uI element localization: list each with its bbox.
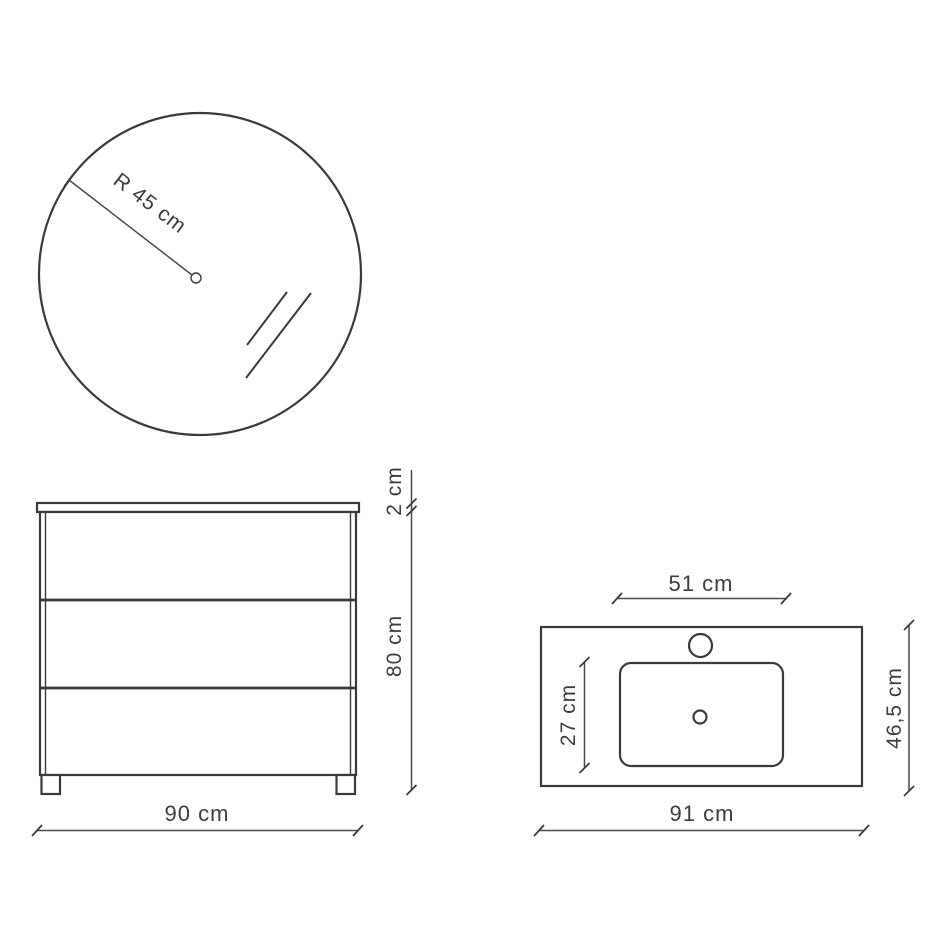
basin-depth-label: 27 cm (557, 684, 580, 746)
washbasin-depth-label: 46,5 cm (883, 667, 906, 749)
cabinet-body (40, 512, 356, 775)
washbasin-top-view: 51 cm 27 cm 46,5 cm 91 cm (534, 571, 914, 836)
mirror-front-view: R 45 cm (39, 113, 361, 435)
basin-width-dimension: 51 cm (612, 571, 791, 604)
basin-width-label: 51 cm (669, 571, 734, 596)
faucet-hole (689, 634, 712, 657)
washbasin-width-dimension: 91 cm (534, 801, 869, 836)
technical-drawing-canvas: R 45 cm 2 cm 80 cm (0, 0, 950, 950)
cabinet-height-label: 80 cm (383, 615, 406, 677)
cabinet-width-label: 90 cm (165, 801, 230, 826)
drain-hole (694, 711, 707, 724)
cabinet-top-thickness-label: 2 cm (383, 466, 406, 516)
cabinet-foot-right (337, 775, 356, 794)
cabinet-width-dimension: 90 cm (32, 801, 363, 836)
cabinet-top-panel (37, 503, 359, 512)
technical-drawing-page: R 45 cm 2 cm 80 cm (0, 0, 950, 950)
washbasin-width-label: 91 cm (670, 801, 735, 826)
cabinet-height-dimension: 2 cm 80 cm (383, 466, 417, 795)
washbasin-depth-dimension: 46,5 cm (883, 620, 914, 796)
cabinet-foot-left (42, 775, 61, 794)
cabinet-front-view: 2 cm 80 cm 90 cm (32, 466, 417, 836)
